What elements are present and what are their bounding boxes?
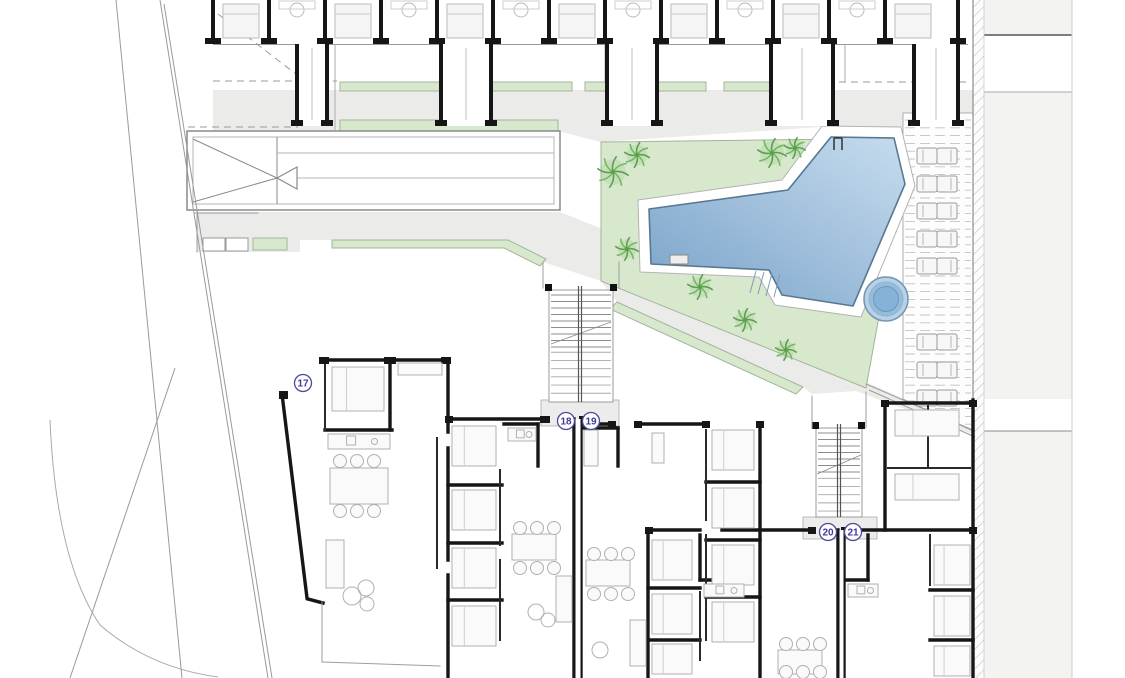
chair — [514, 562, 527, 575]
wall-stub — [821, 38, 837, 44]
party-wall — [956, 0, 960, 44]
sofa — [326, 540, 344, 588]
chair — [588, 548, 601, 561]
sofa — [630, 620, 646, 666]
party-wall-cavity — [576, 419, 581, 678]
bath-counter — [391, 1, 427, 9]
bed — [447, 4, 483, 38]
party-wall — [211, 0, 215, 44]
lounger-right — [937, 362, 957, 378]
washbasin — [290, 3, 304, 17]
right-panel — [984, 0, 1072, 678]
palm-trunk — [698, 285, 702, 289]
bed — [712, 602, 754, 642]
palm-trunk — [611, 170, 615, 174]
core-wall — [912, 44, 916, 126]
kitchen-counter — [328, 434, 390, 449]
bed — [934, 646, 970, 676]
wall-stub — [651, 120, 663, 126]
sun-lounger — [917, 176, 957, 192]
core-wall — [831, 44, 835, 126]
lounger-right — [937, 334, 957, 350]
wall-stub — [765, 38, 781, 44]
bath-counter — [839, 1, 875, 9]
chair — [351, 505, 364, 518]
storage-box — [203, 238, 225, 251]
wall-stub — [608, 421, 616, 428]
bed — [332, 367, 384, 411]
wall-stub — [597, 38, 613, 44]
core-wall — [439, 44, 443, 126]
chair — [334, 455, 347, 468]
wall-stub — [261, 38, 277, 44]
spa-core — [874, 287, 899, 312]
bed — [452, 490, 496, 530]
wall-stub — [435, 120, 447, 126]
washbasin — [514, 3, 528, 17]
washbasin — [402, 3, 416, 17]
chair — [814, 638, 827, 651]
chair — [797, 638, 810, 651]
dining-table — [330, 468, 388, 504]
wall-stub — [485, 38, 501, 44]
party-wall — [659, 0, 663, 44]
core-wall — [769, 44, 773, 126]
sofa — [556, 576, 572, 622]
bath-counter — [279, 1, 315, 9]
lounger-left — [917, 176, 937, 192]
bed — [934, 596, 970, 636]
wall-stub — [908, 120, 920, 126]
chair — [605, 588, 618, 601]
chair — [780, 638, 793, 651]
stair-outline — [816, 428, 862, 517]
party-wall — [267, 0, 271, 44]
washbasin — [738, 3, 752, 17]
bath-counter — [503, 1, 539, 9]
bath-counter — [727, 1, 763, 9]
wall-stub — [373, 38, 389, 44]
wall-stub — [279, 391, 288, 399]
bed — [452, 426, 496, 466]
chair — [368, 455, 381, 468]
wall-stub — [429, 38, 445, 44]
chair — [368, 505, 381, 518]
storage-box — [226, 238, 248, 251]
wall-stub — [881, 400, 889, 407]
bed — [895, 410, 959, 436]
palm-trunk — [793, 146, 797, 150]
party-wall — [379, 0, 383, 44]
wall-stub — [610, 284, 617, 291]
unit-label-17: 17 — [295, 375, 312, 392]
wall-stub — [653, 38, 669, 44]
lounger-right — [937, 203, 957, 219]
bed — [335, 4, 371, 38]
lounger-left — [917, 334, 937, 350]
wall-stub — [321, 120, 333, 126]
dresser — [398, 363, 442, 375]
wall-stub — [950, 38, 966, 44]
chair — [548, 522, 561, 535]
planting-strip — [340, 82, 440, 91]
planting-strip — [253, 238, 287, 250]
party-wall — [547, 0, 551, 44]
unit-label-text: 20 — [822, 528, 834, 539]
party-wall — [827, 0, 831, 44]
wall-stub — [645, 527, 653, 534]
pool-deck — [903, 113, 973, 431]
dining-table — [512, 534, 556, 560]
chair — [780, 666, 793, 678]
chair — [334, 505, 347, 518]
ramp-outline — [187, 131, 560, 210]
unit-label-text: 17 — [297, 379, 309, 390]
chair — [622, 548, 635, 561]
wall-stub — [812, 422, 819, 429]
wall-stub — [756, 421, 764, 428]
bed — [452, 606, 496, 646]
wall-stub — [541, 38, 557, 44]
garden-bench — [670, 255, 688, 264]
core-wall — [956, 44, 960, 126]
wall-stub — [601, 120, 613, 126]
chair — [548, 562, 561, 575]
wall-stub — [969, 400, 977, 407]
palm-trunk — [625, 247, 629, 251]
dining-table — [586, 560, 630, 586]
wall-stub — [445, 416, 453, 423]
bed — [712, 430, 754, 470]
chair — [514, 522, 527, 535]
sun-lounger — [917, 148, 957, 164]
right-panel-band — [984, 399, 1072, 431]
lounger-left — [917, 148, 937, 164]
wall-stub — [858, 422, 865, 429]
core-wall — [489, 44, 493, 126]
unit-label-19: 19 — [583, 413, 600, 430]
wall-stub — [969, 527, 977, 534]
chair — [814, 666, 827, 678]
unit-label-text: 21 — [847, 528, 859, 539]
terrace-line — [322, 662, 440, 666]
party-wall — [435, 0, 439, 44]
plant — [592, 642, 608, 658]
wall-stub — [291, 120, 303, 126]
palm-trunk — [743, 318, 747, 322]
unit-label-18: 18 — [558, 413, 575, 430]
wall-stub — [319, 357, 329, 364]
bed — [652, 540, 692, 580]
core-wall — [605, 44, 609, 126]
sun-lounger — [917, 203, 957, 219]
boundary-curve — [50, 420, 218, 677]
wall — [308, 599, 323, 603]
bed — [712, 545, 754, 585]
spa-hot-tub — [864, 277, 908, 321]
right-panel-band — [984, 35, 1072, 92]
sun-lounger — [917, 362, 957, 378]
wall-stub — [808, 527, 816, 534]
wall-stub — [485, 120, 497, 126]
lounger-left — [917, 203, 937, 219]
unit-label-text: 18 — [560, 417, 572, 428]
core-wall — [655, 44, 659, 126]
unit-label-21: 21 — [845, 524, 862, 541]
plant — [358, 580, 374, 596]
wall-stub — [634, 421, 642, 428]
bed — [652, 594, 692, 634]
bed — [452, 548, 496, 588]
wall-stub — [827, 120, 839, 126]
staircase — [803, 422, 877, 539]
bath-counter — [615, 1, 651, 9]
washbasin — [626, 3, 640, 17]
sun-lounger — [917, 258, 957, 274]
unit-label-20: 20 — [820, 524, 837, 541]
party-wall — [323, 0, 327, 44]
chair — [622, 588, 635, 601]
bed — [895, 4, 931, 38]
dresser — [652, 433, 664, 463]
unit-label-text: 19 — [585, 417, 597, 428]
kitchen-counter — [584, 430, 598, 466]
wall-stub — [317, 38, 333, 44]
party-wall — [491, 0, 495, 44]
sun-lounger — [917, 231, 957, 247]
palm-trunk — [635, 153, 639, 157]
chair — [531, 522, 544, 535]
wall-stub — [702, 421, 710, 428]
wall-stub — [709, 38, 725, 44]
wall-stub — [384, 357, 396, 364]
bed — [895, 474, 959, 500]
chair — [531, 562, 544, 575]
lounger-right — [937, 176, 957, 192]
chair — [351, 455, 364, 468]
lounger-right — [937, 258, 957, 274]
party-wall — [883, 0, 887, 44]
party-wall — [715, 0, 719, 44]
palm-trunk — [784, 348, 788, 352]
lounger-left — [917, 362, 937, 378]
bed — [652, 644, 692, 674]
lounger-left — [917, 231, 937, 247]
core-wall — [295, 44, 299, 126]
lounger-left — [917, 258, 937, 274]
wall-stub — [877, 38, 893, 44]
wall-stub — [545, 284, 552, 291]
chair — [588, 588, 601, 601]
floor-plan-canvas: 1718192021 — [0, 0, 1125, 678]
boundary-line — [70, 368, 175, 678]
bed — [671, 4, 707, 38]
bed — [559, 4, 595, 38]
staircase — [541, 284, 619, 426]
bed — [223, 4, 259, 38]
palm-trunk — [770, 151, 774, 155]
boundary-line — [116, 0, 182, 678]
party-wall-cavity — [840, 530, 844, 678]
lounger-right — [937, 231, 957, 247]
lounger-right — [937, 148, 957, 164]
access-ramp — [187, 131, 560, 210]
core-wall — [325, 44, 329, 126]
wall — [282, 394, 307, 598]
wall-stub — [765, 120, 777, 126]
wall-stub — [540, 416, 550, 423]
washbasin — [850, 3, 864, 17]
sun-lounger — [917, 334, 957, 350]
garden-green — [332, 240, 546, 266]
party-wall — [603, 0, 607, 44]
chair — [797, 666, 810, 678]
wall-stub — [952, 120, 964, 126]
bed — [934, 545, 970, 585]
plant — [360, 597, 374, 611]
bed — [712, 488, 754, 528]
bed — [783, 4, 819, 38]
site-plan-svg: 1718192021 — [0, 0, 1125, 678]
party-wall — [771, 0, 775, 44]
wall-stub — [205, 38, 221, 44]
chair — [605, 548, 618, 561]
plant — [541, 613, 555, 627]
